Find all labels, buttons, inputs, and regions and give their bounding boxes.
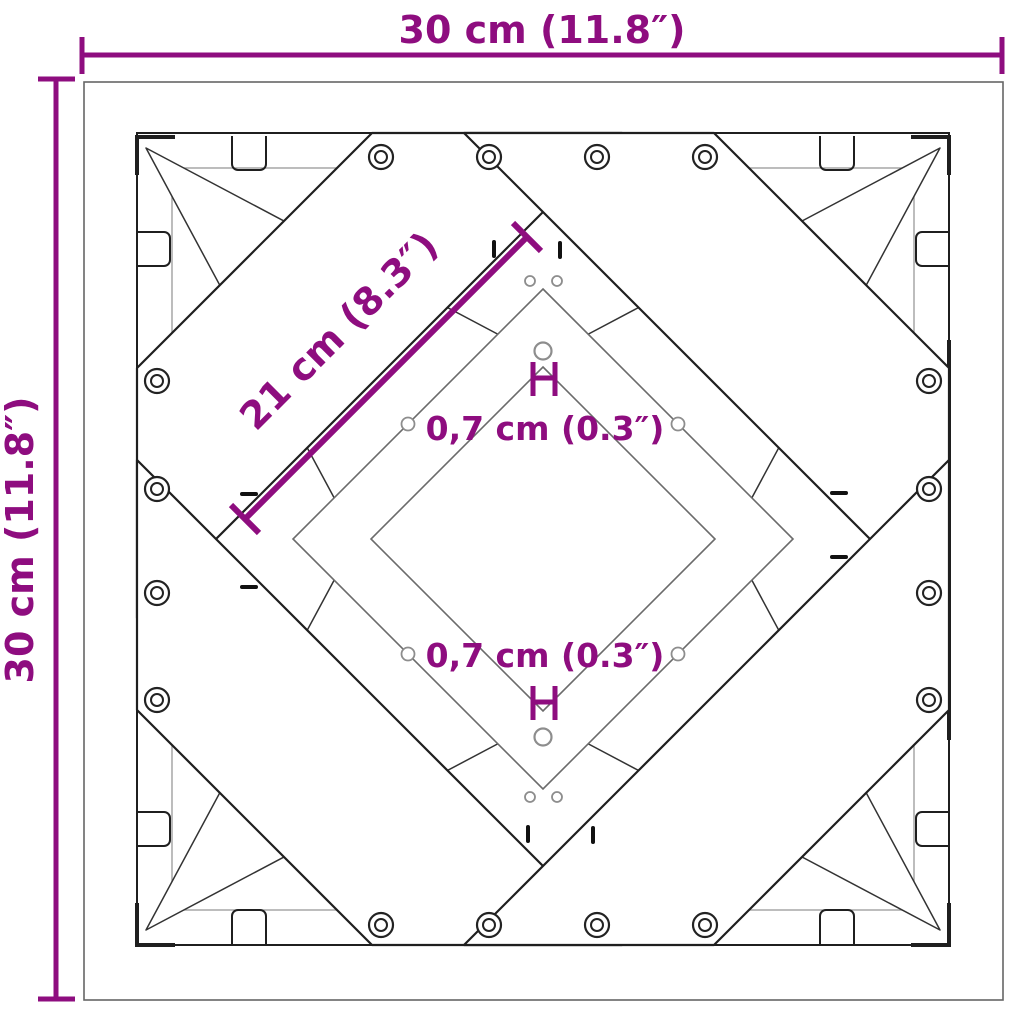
dimension-label-left: 30 cm (11.8″): [0, 397, 42, 684]
dimension-left: 30 cm (11.8″): [0, 79, 75, 999]
dimension-label-top: 30 cm (11.8″): [399, 8, 686, 52]
dimension-label-hole-bottom: 0,7 cm (0.3″): [426, 636, 665, 675]
hole-bottom-marker: [535, 729, 552, 746]
diagram-canvas: 30 cm (11.8″) 30 cm (11.8″) 21 cm (8.3″)…: [0, 0, 1024, 1024]
dimension-diagram: 30 cm (11.8″) 30 cm (11.8″) 21 cm (8.3″)…: [0, 0, 1024, 1024]
hole-top-marker: [535, 343, 552, 360]
dimension-label-hole-top: 0,7 cm (0.3″): [426, 409, 665, 448]
dimension-top: 30 cm (11.8″): [82, 8, 1002, 74]
